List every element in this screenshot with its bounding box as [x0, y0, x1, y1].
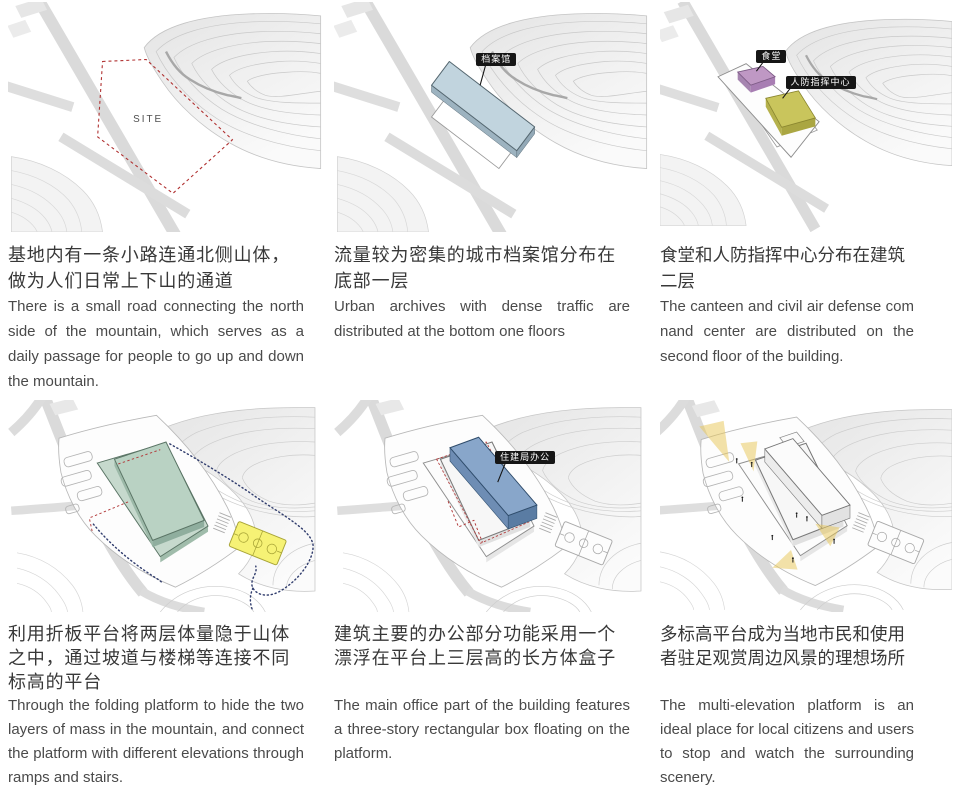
caption-office-zh: 建筑主要的办公部分功能采用一个漂浮在平台上三层高的长方体盒子	[334, 622, 630, 694]
site-diagram-svg: SITE	[8, 2, 324, 232]
office-diagram: 住建局办公	[334, 400, 650, 612]
caption-site-zh: 基地内有一条小路连通北侧山体，做为人们日常上下山的通道	[8, 242, 304, 294]
viewing-diagram-svg	[660, 400, 952, 612]
defense-label-tag: 人防指挥中心	[786, 76, 856, 89]
caption-archives: 流量较为密集的城市档案馆分布在底部一层 Urban archives with …	[334, 242, 630, 344]
panel-platform: 利用折板平台将两层体量隐于山体之中，通过坡道与楼梯等连接不同标高的平台 Thro…	[8, 394, 324, 790]
panel-canteen-defense: 食堂 人防指挥中心 食堂和人防指挥中心分布在建筑二层 The canteen a…	[660, 2, 952, 394]
platform-diagram-svg	[8, 400, 324, 612]
archives-diagram: 档案馆	[334, 2, 650, 232]
caption-canteen-defense-zh: 食堂和人防指挥中心分布在建筑二层	[660, 242, 914, 294]
platform-diagram	[8, 400, 324, 612]
caption-office-en: The main office part of the building fea…	[334, 694, 630, 766]
caption-viewing-zh: 多标高平台成为当地市民和使用者驻足观赏周边风景的理想场所	[660, 622, 914, 694]
site-base-map	[8, 2, 321, 232]
caption-archives-en: Urban archives with dense traffic are di…	[334, 294, 630, 344]
panel-site: SITE 基地内有一条小路连通北侧山体，做为人们日常上下山的通道 There i…	[8, 2, 324, 394]
canteen-defense-diagram: 食堂 人防指挥中心	[660, 2, 952, 232]
caption-canteen-defense-en: The canteen and civil air defense com na…	[660, 294, 914, 369]
panel-viewing: 多标高平台成为当地市民和使用者驻足观赏周边风景的理想场所 The multi-e…	[660, 394, 952, 790]
caption-viewing-en: The multi-elevation platform is an ideal…	[660, 694, 914, 790]
caption-viewing: 多标高平台成为当地市民和使用者驻足观赏周边风景的理想场所 The multi-e…	[660, 622, 914, 790]
caption-platform-zh: 利用折板平台将两层体量隐于山体之中，通过坡道与楼梯等连接不同标高的平台	[8, 622, 304, 694]
panel-archives: 档案馆 流量较为密集的城市档案馆分布在底部一层 Urban archives w…	[334, 2, 650, 394]
canteen-defense-diagram-svg	[660, 2, 952, 232]
site-label: SITE	[133, 114, 163, 125]
viewing-diagram	[660, 400, 952, 612]
office-label-tag: 住建局办公	[495, 451, 555, 464]
caption-archives-zh: 流量较为密集的城市档案馆分布在底部一层	[334, 242, 630, 294]
caption-site: 基地内有一条小路连通北侧山体，做为人们日常上下山的通道 There is a s…	[8, 242, 304, 394]
caption-office: 建筑主要的办公部分功能采用一个漂浮在平台上三层高的长方体盒子 The main …	[334, 622, 630, 766]
canteen-label-tag: 食堂	[756, 50, 786, 63]
caption-canteen-defense: 食堂和人防指挥中心分布在建筑二层 The canteen and civil a…	[660, 242, 914, 369]
caption-platform: 利用折板平台将两层体量隐于山体之中，通过坡道与楼梯等连接不同标高的平台 Thro…	[8, 622, 304, 790]
caption-platform-en: Through the folding platform to hide the…	[8, 694, 304, 790]
diagram-sheet: SITE 基地内有一条小路连通北侧山体，做为人们日常上下山的通道 There i…	[0, 0, 960, 790]
office-diagram-svg	[334, 400, 650, 612]
archives-label-tag: 档案馆	[476, 53, 516, 66]
archives-diagram-svg	[334, 2, 650, 232]
caption-site-en: There is a small road connecting the nor…	[8, 294, 304, 394]
panel-office: 住建局办公 建筑主要的办公部分功能采用一个漂浮在平台上三层高的长方体盒子 The…	[334, 394, 650, 790]
site-diagram: SITE	[8, 2, 324, 232]
